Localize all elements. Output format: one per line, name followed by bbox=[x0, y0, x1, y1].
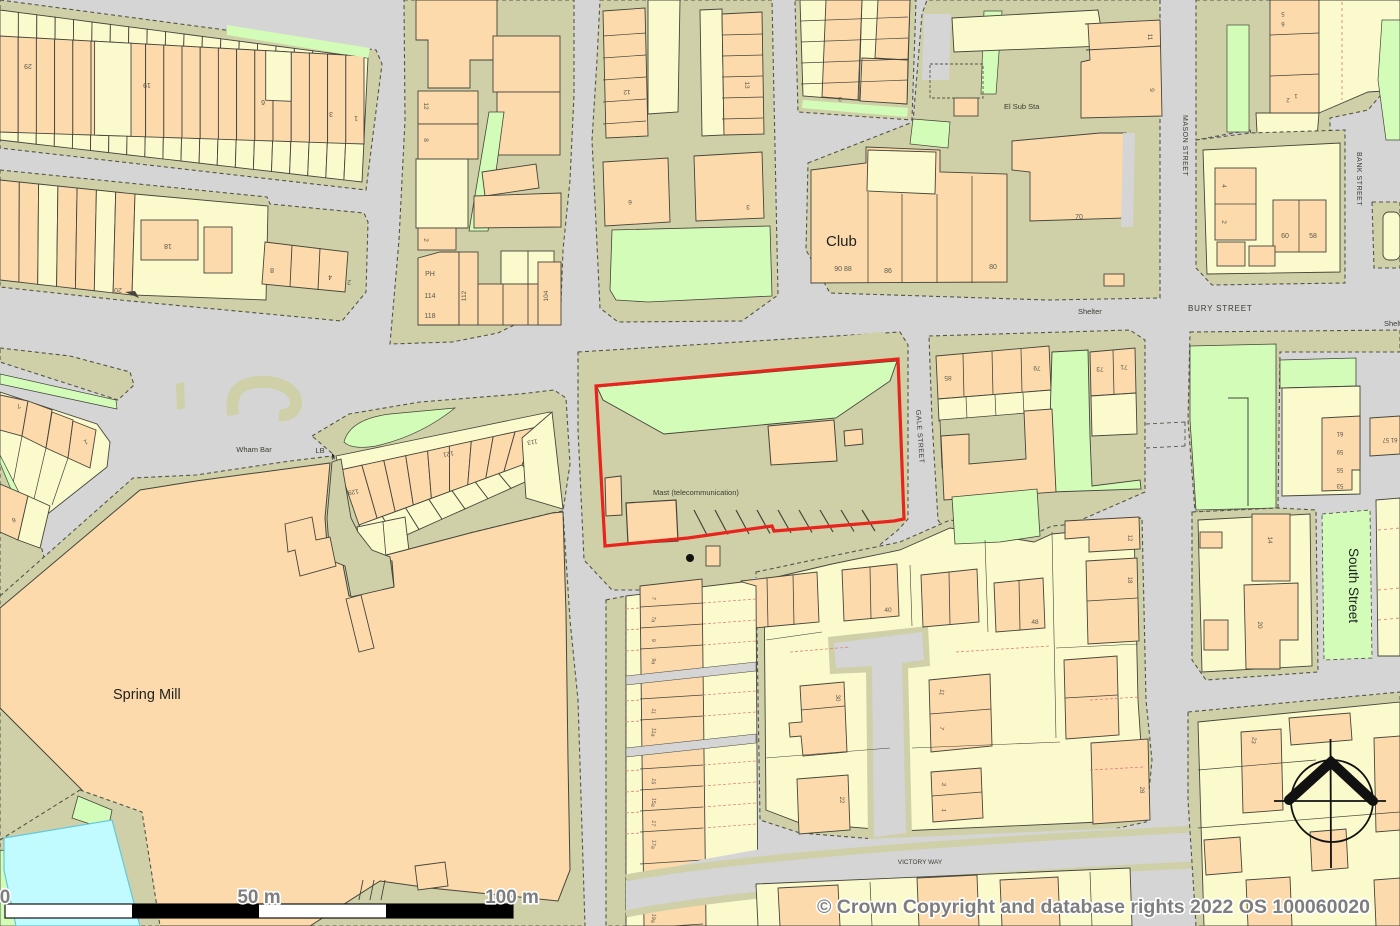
svg-text:20: 20 bbox=[1256, 621, 1263, 629]
svg-text:17: 17 bbox=[649, 820, 656, 827]
svg-text:70: 70 bbox=[1075, 214, 1083, 221]
svg-text:20: 20 bbox=[114, 286, 122, 293]
svg-text:114: 114 bbox=[424, 293, 435, 300]
svg-text:2: 2 bbox=[838, 95, 842, 102]
svg-text:2: 2 bbox=[422, 238, 429, 242]
svg-text:LB: LB bbox=[315, 446, 324, 455]
svg-text:BANK STREET: BANK STREET bbox=[1355, 152, 1362, 206]
svg-text:3: 3 bbox=[329, 110, 333, 117]
svg-text:Mast (telecommunication): Mast (telecommunication) bbox=[653, 488, 739, 497]
svg-text:50 m: 50 m bbox=[237, 887, 280, 908]
svg-text:Wham Bar: Wham Bar bbox=[236, 445, 272, 454]
svg-text:40: 40 bbox=[884, 607, 892, 614]
svg-text:PH: PH bbox=[425, 271, 435, 278]
svg-text:58: 58 bbox=[1309, 233, 1317, 240]
svg-text:86: 86 bbox=[884, 268, 892, 275]
svg-text:18: 18 bbox=[1126, 577, 1132, 584]
svg-text:104: 104 bbox=[543, 290, 550, 301]
svg-text:53: 53 bbox=[1336, 482, 1343, 488]
svg-text:55: 55 bbox=[1336, 466, 1343, 472]
svg-text:90 88: 90 88 bbox=[834, 266, 852, 273]
svg-text:VICTORY WAY: VICTORY WAY bbox=[898, 859, 943, 866]
svg-text:118: 118 bbox=[424, 313, 435, 320]
svg-text:4: 4 bbox=[328, 273, 332, 280]
svg-text:MASON STREET: MASON STREET bbox=[1181, 115, 1188, 176]
svg-text:9: 9 bbox=[1148, 88, 1155, 92]
svg-text:11: 11 bbox=[1146, 34, 1153, 41]
svg-text:12: 12 bbox=[1126, 535, 1132, 542]
svg-text:0: 0 bbox=[0, 887, 10, 908]
svg-text:6: 6 bbox=[628, 198, 632, 205]
svg-text:2: 2 bbox=[347, 278, 351, 285]
svg-text:6: 6 bbox=[261, 98, 265, 105]
svg-text:14: 14 bbox=[1266, 536, 1273, 544]
svg-text:1: 1 bbox=[354, 114, 358, 121]
svg-text:80: 80 bbox=[989, 264, 997, 271]
svg-text:© Crown Copyright and database: © Crown Copyright and database rights 20… bbox=[817, 896, 1370, 918]
svg-text:El Sub Sta: El Sub Sta bbox=[1004, 102, 1040, 111]
svg-text:Club: Club bbox=[826, 233, 857, 250]
svg-text:2: 2 bbox=[1220, 220, 1227, 224]
svg-text:12: 12 bbox=[422, 102, 429, 110]
svg-text:61 57: 61 57 bbox=[1382, 436, 1398, 442]
svg-text:48: 48 bbox=[1031, 619, 1039, 626]
svg-text:28: 28 bbox=[1138, 787, 1144, 794]
svg-text:18: 18 bbox=[164, 242, 172, 249]
svg-text:Spring Mill: Spring Mill bbox=[113, 687, 181, 703]
svg-text:85: 85 bbox=[944, 374, 952, 381]
svg-text:61: 61 bbox=[1336, 430, 1343, 436]
svg-text:BURY STREET: BURY STREET bbox=[1188, 304, 1253, 313]
svg-text:73: 73 bbox=[1096, 365, 1104, 372]
svg-text:8: 8 bbox=[270, 266, 274, 273]
svg-text:13: 13 bbox=[743, 81, 750, 89]
svg-text:22: 22 bbox=[838, 797, 844, 804]
svg-text:3: 3 bbox=[746, 203, 750, 210]
svg-text:29: 29 bbox=[24, 62, 32, 69]
svg-text:South Street: South Street bbox=[1346, 548, 1361, 623]
svg-text:60: 60 bbox=[1281, 233, 1289, 240]
svg-text:15: 15 bbox=[649, 778, 656, 785]
svg-text:Shelter: Shelter bbox=[1078, 307, 1102, 316]
svg-text:Shelte: Shelte bbox=[1384, 319, 1400, 328]
svg-text:112: 112 bbox=[461, 290, 468, 301]
svg-text:4: 4 bbox=[1220, 184, 1227, 188]
svg-text:11: 11 bbox=[650, 708, 657, 715]
svg-text:71: 71 bbox=[1120, 363, 1128, 370]
svg-text:30: 30 bbox=[834, 695, 840, 702]
svg-text:59: 59 bbox=[1336, 448, 1343, 454]
svg-text:19: 19 bbox=[143, 81, 151, 88]
svg-text:79: 79 bbox=[1033, 364, 1041, 371]
svg-text:100 m: 100 m bbox=[485, 887, 539, 908]
svg-text:12: 12 bbox=[623, 88, 631, 95]
svg-text:8: 8 bbox=[422, 138, 429, 142]
